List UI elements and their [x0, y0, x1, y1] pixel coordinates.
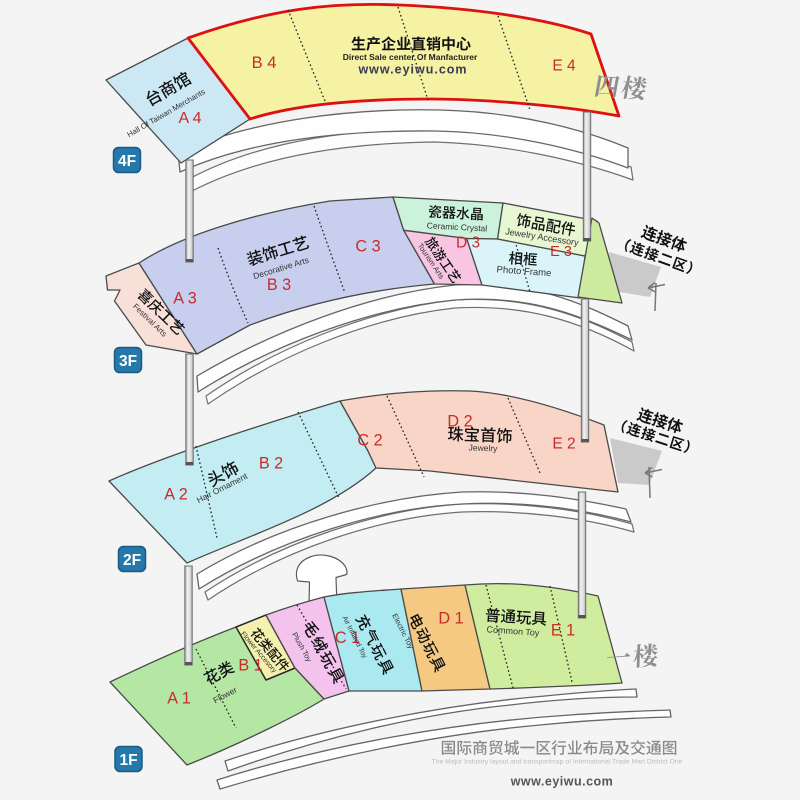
svg-text:3F: 3F — [119, 353, 137, 370]
svg-text:www.eyiwu.com: www.eyiwu.com — [357, 62, 467, 76]
svg-text:C 2: C 2 — [357, 432, 382, 450]
svg-text:4F: 4F — [118, 153, 136, 170]
svg-text:The Major Industry layout and: The Major Industry layout and transportm… — [432, 758, 683, 765]
svg-text:A 4: A 4 — [178, 110, 201, 127]
svg-text:A 3: A 3 — [173, 290, 196, 308]
svg-text:C 3: C 3 — [355, 238, 380, 256]
svg-text:E 3: E 3 — [550, 244, 572, 260]
svg-text:E 2: E 2 — [552, 435, 575, 452]
svg-text:Direct Sale center Of Manfactu: Direct Sale center Of Manfacturer — [343, 52, 478, 62]
svg-text:D 3: D 3 — [456, 234, 480, 251]
svg-text:1F: 1F — [119, 752, 137, 769]
svg-text:www.eyiwu.com: www.eyiwu.com — [510, 774, 614, 788]
svg-text:Jewelry: Jewelry — [468, 442, 498, 453]
svg-text:A 1: A 1 — [167, 690, 190, 708]
svg-text:B 3: B 3 — [267, 276, 291, 294]
svg-text:B 4: B 4 — [252, 54, 277, 72]
svg-text:D 1: D 1 — [438, 610, 463, 628]
svg-text:B 2: B 2 — [259, 455, 283, 473]
svg-text:B 1: B 1 — [238, 657, 262, 675]
svg-text:E 1: E 1 — [551, 622, 575, 640]
svg-text:E 4: E 4 — [552, 57, 576, 74]
svg-text:A 2: A 2 — [164, 486, 187, 504]
svg-text:2F: 2F — [123, 552, 141, 569]
